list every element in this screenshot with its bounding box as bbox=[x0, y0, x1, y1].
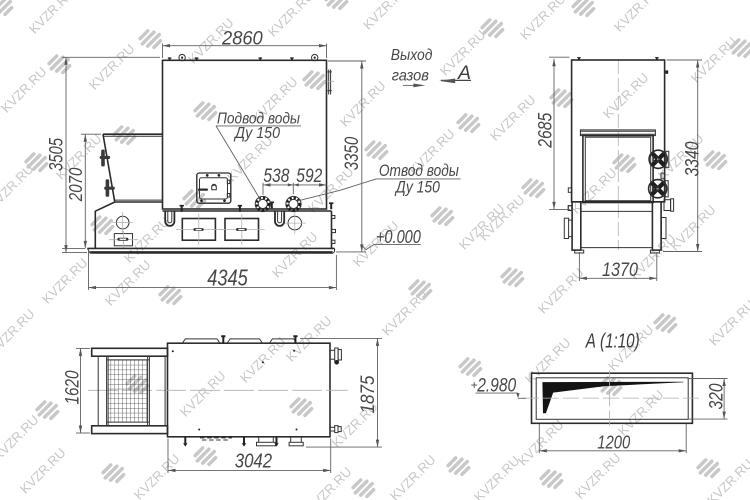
svg-text:KVZR.RU: KVZR.RU bbox=[39, 255, 91, 307]
svg-text:3340: 3340 bbox=[683, 141, 704, 176]
svg-text:1200: 1200 bbox=[597, 432, 631, 453]
svg-text:KVZR.RU: KVZR.RU bbox=[0, 64, 50, 116]
svg-text:3505: 3505 bbox=[47, 138, 68, 171]
svg-text:KVZR.RU: KVZR.RU bbox=[535, 265, 587, 317]
svg-text:2070: 2070 bbox=[66, 168, 86, 202]
svg-text:KVZR.RU: KVZR.RU bbox=[487, 92, 539, 144]
svg-text:газов: газов bbox=[392, 68, 429, 85]
svg-text:KVZR.RU: KVZR.RU bbox=[26, 0, 78, 37]
svg-text:KVZR.RU: KVZR.RU bbox=[265, 0, 317, 40]
svg-text:KVZR.RU: KVZR.RU bbox=[360, 0, 412, 33]
svg-text:А: А bbox=[457, 62, 471, 84]
svg-text:1620: 1620 bbox=[63, 370, 84, 404]
svg-text:4345: 4345 bbox=[207, 265, 248, 291]
svg-text:320: 320 bbox=[707, 383, 728, 409]
svg-text:KVZR.RU: KVZR.RU bbox=[86, 41, 138, 93]
svg-text:2685: 2685 bbox=[536, 112, 557, 148]
svg-text:KVZR.RU: KVZR.RU bbox=[237, 334, 289, 386]
svg-text:Ду 150: Ду 150 bbox=[233, 125, 280, 142]
svg-text:1875: 1875 bbox=[358, 375, 379, 413]
svg-text:3042: 3042 bbox=[235, 451, 272, 473]
svg-text:KVZR.RU: KVZR.RU bbox=[0, 161, 37, 213]
svg-text:KVZR.RU: KVZR.RU bbox=[337, 78, 389, 130]
svg-text:2860: 2860 bbox=[221, 28, 263, 49]
svg-text:KVZR.RU: KVZR.RU bbox=[102, 257, 154, 309]
svg-text:KVZR.RU: KVZR.RU bbox=[177, 368, 229, 420]
svg-text:1370: 1370 bbox=[602, 259, 638, 281]
svg-text:Выход: Выход bbox=[391, 47, 433, 64]
svg-text:538: 538 bbox=[263, 166, 289, 187]
svg-text:KVZR.RU: KVZR.RU bbox=[131, 451, 183, 500]
svg-text:KVZR.RU: KVZR.RU bbox=[572, 450, 624, 500]
svg-text:KVZR.RU: KVZR.RU bbox=[706, 297, 750, 349]
svg-text:KVZR.RU: KVZR.RU bbox=[303, 464, 355, 500]
svg-text:KVZR.RU: KVZR.RU bbox=[0, 306, 38, 358]
svg-text:KVZR.RU: KVZR.RU bbox=[667, 202, 719, 254]
svg-text:Ду 150: Ду 150 bbox=[394, 178, 440, 197]
svg-text:KVZR.RU: KVZR.RU bbox=[517, 0, 569, 43]
svg-text:+: + bbox=[470, 378, 477, 392]
svg-text:KVZR.RU: KVZR.RU bbox=[568, 165, 620, 217]
svg-text:KVZR.RU: KVZR.RU bbox=[269, 229, 321, 281]
svg-text:KVZR.RU: KVZR.RU bbox=[17, 445, 69, 497]
svg-text:KVZR.RU: KVZR.RU bbox=[379, 287, 431, 339]
svg-text:KVZR.RU: KVZR.RU bbox=[600, 70, 652, 122]
svg-text:KVZR.RU: KVZR.RU bbox=[611, 0, 663, 35]
svg-text:KVZR.RU: KVZR.RU bbox=[387, 452, 439, 500]
svg-text:3350: 3350 bbox=[342, 136, 363, 170]
svg-text:KVZR.RU: KVZR.RU bbox=[522, 335, 574, 387]
svg-text:KVZR.RU: KVZR.RU bbox=[515, 417, 567, 469]
svg-text:KVZR.RU: KVZR.RU bbox=[471, 453, 523, 500]
svg-text:KVZR.RU: KVZR.RU bbox=[0, 412, 42, 464]
svg-text:592: 592 bbox=[296, 166, 322, 187]
svg-text:А (1:10): А (1:10) bbox=[585, 330, 640, 352]
